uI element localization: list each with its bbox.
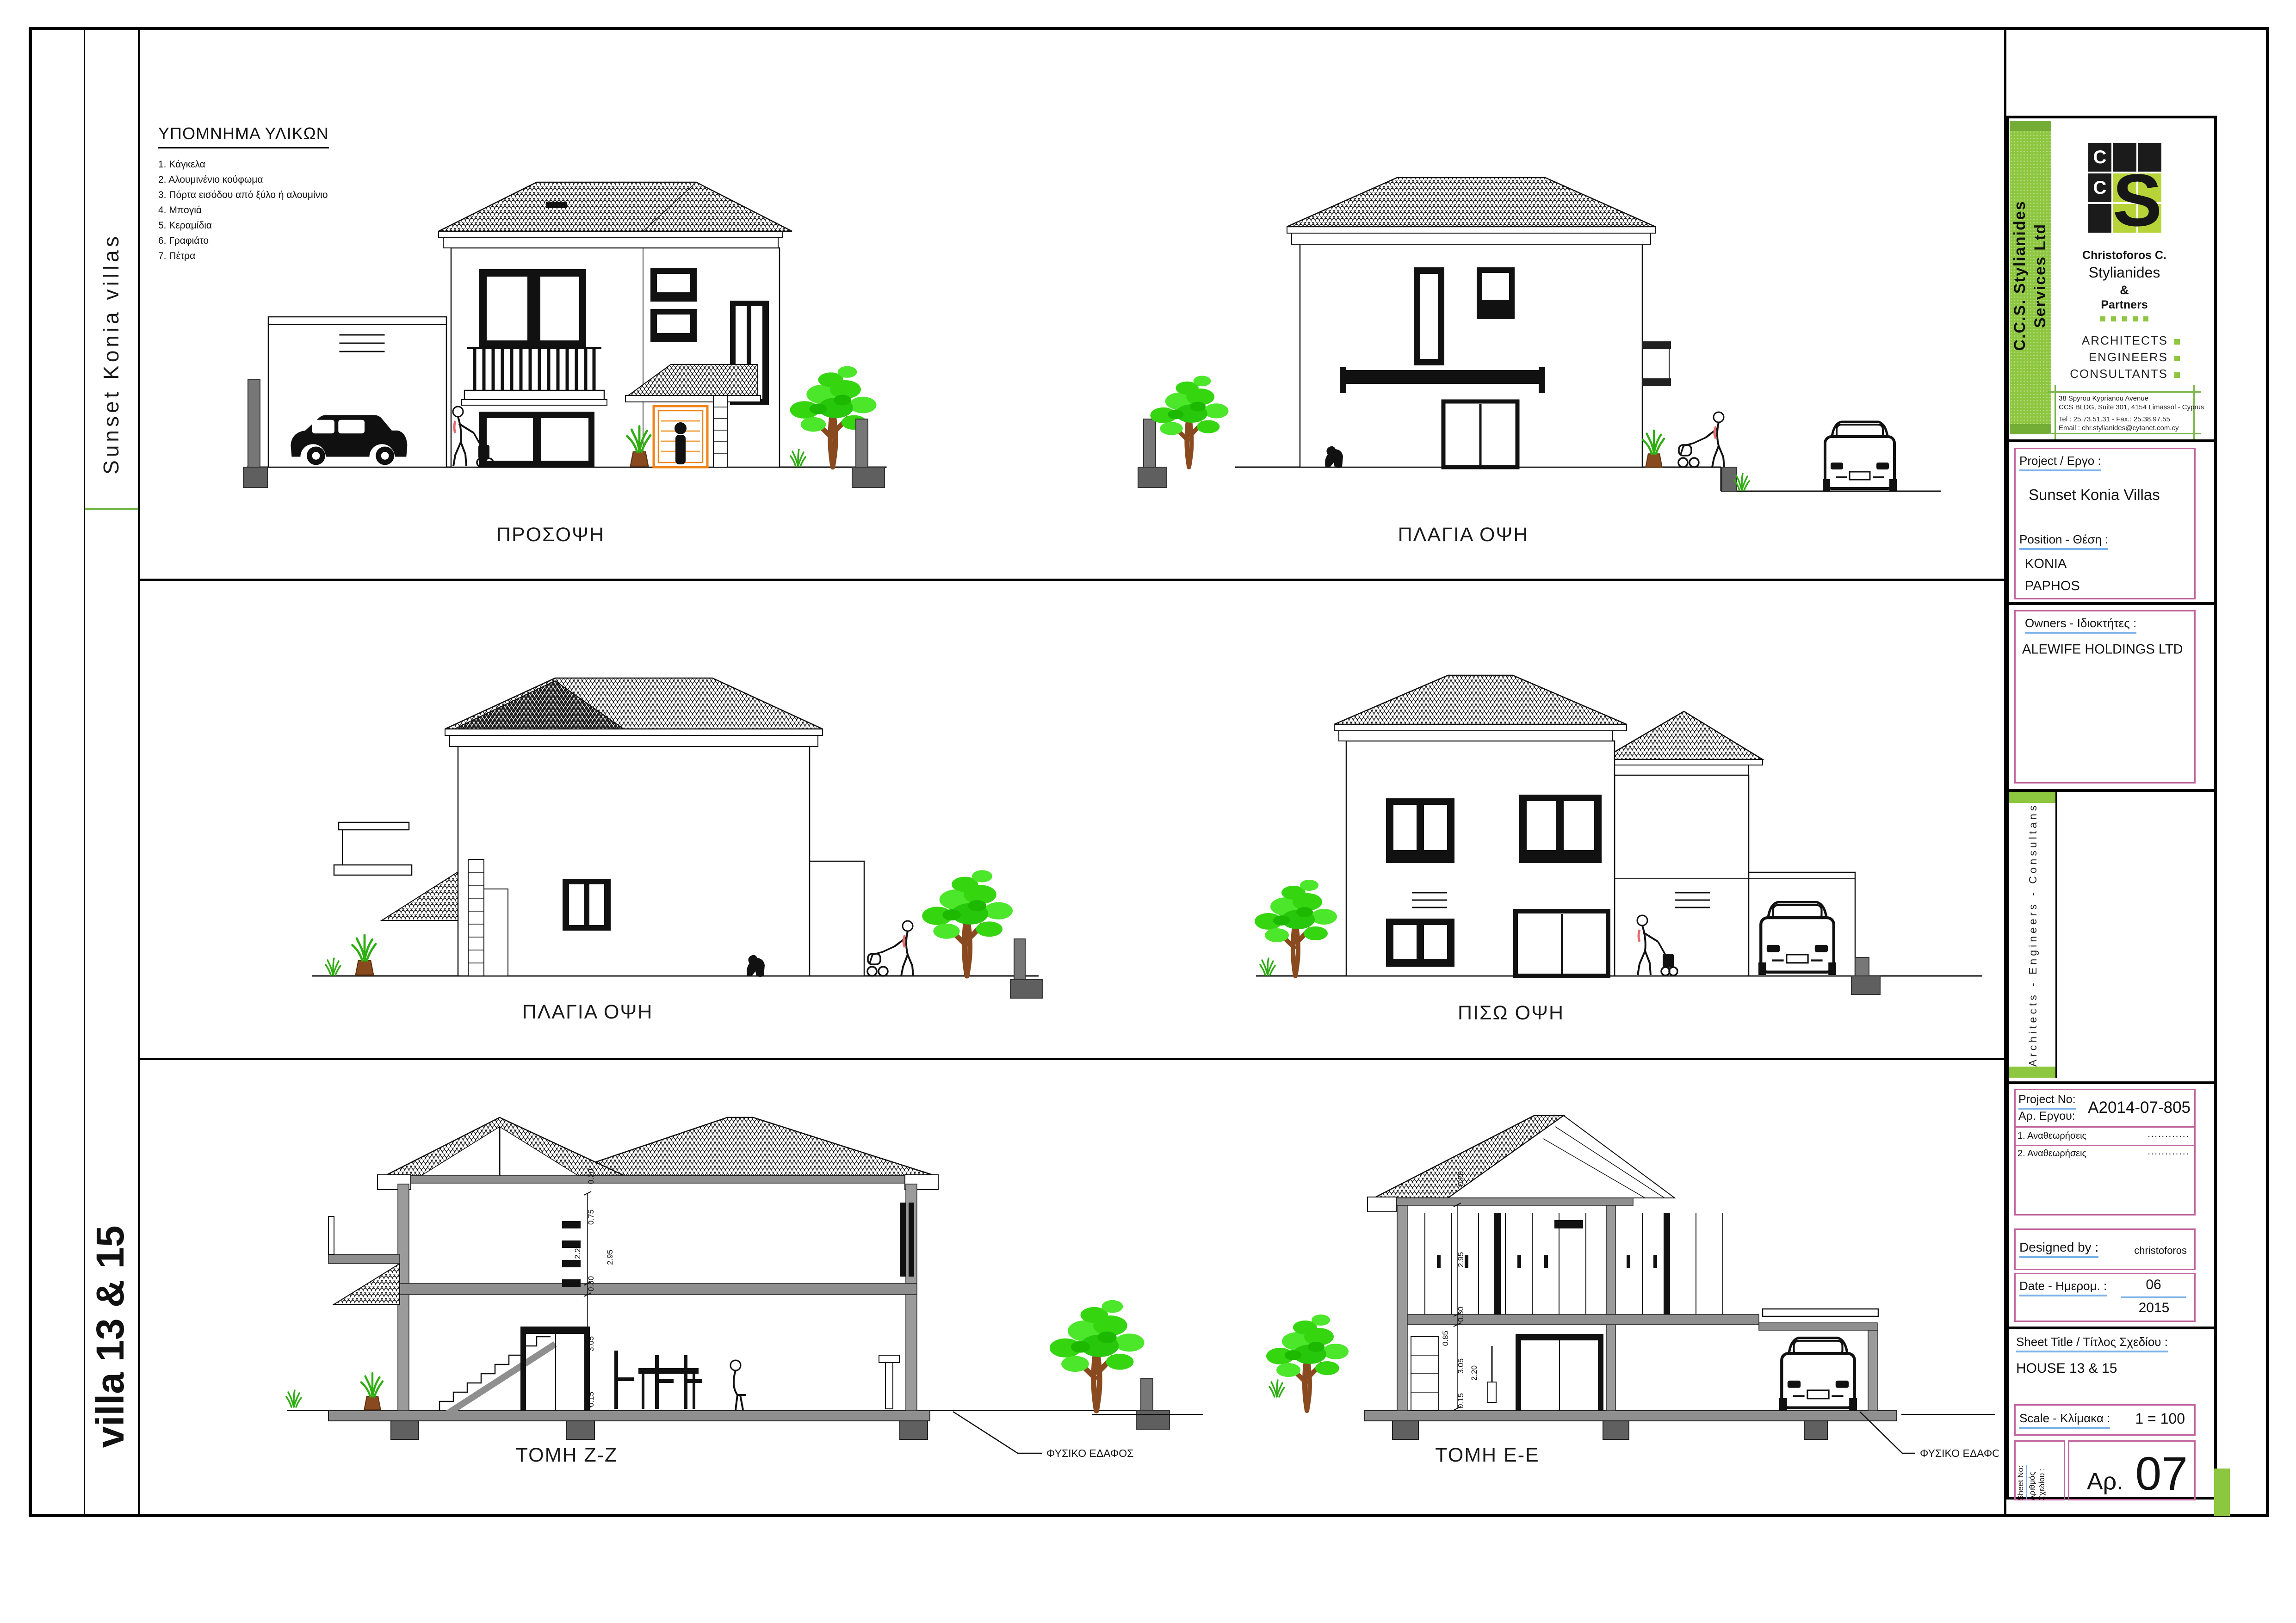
- tree-icon: [1050, 1300, 1145, 1411]
- sheet-title-value: HOUSE 13 & 15: [2016, 1361, 2117, 1376]
- person-stroller-icon: [867, 921, 913, 976]
- project-box: Project / Εργο : Sunset Konia Villas Pos…: [2014, 448, 2196, 599]
- tree-icon: [1150, 376, 1228, 467]
- car-rear-icon: [1823, 422, 1897, 491]
- designed-by-value: christoforos: [2134, 1245, 2187, 1257]
- section-ee-drawing: 0.20 2.95 0.30 0.85 3.05 2.20 0.15 ΦΥΣΙΚ…: [1258, 1105, 1999, 1471]
- pink-divider: [2016, 1145, 2194, 1146]
- section-ee-structure: [1365, 1116, 1995, 1439]
- sheet-no-labels: Sheet No: Αριθμός Σχεδίου :: [2016, 1440, 2064, 1500]
- revision-1: 1. Αναθεωρήσεις: [2018, 1131, 2086, 1142]
- dim-text: 0.85: [1441, 1331, 1450, 1346]
- plant-pot-icon: [1643, 431, 1664, 467]
- logo-s-text: S: [2113, 159, 2162, 241]
- firm-name-line1: Christoforos C.: [2060, 249, 2189, 262]
- grass-icon: [791, 450, 805, 466]
- roles-block: ARCHITECTS ENGINEERS CONSULTANTS: [2064, 332, 2180, 382]
- drawing-sheet: Sunset Konia villas villa 13 & 15 ΥΠΟΜΝΗ…: [0, 0, 2296, 1623]
- side-strip-text: Architects - Engineers - Consultans: [2027, 803, 2039, 1067]
- car-rear-icon: [1758, 902, 1836, 975]
- role-engineers: ENGINEERS: [2089, 350, 2168, 364]
- grass-icon: [1260, 958, 1275, 975]
- sheet-no-label-box: Sheet No: Αριθμός Σχεδίου :: [2014, 1440, 2065, 1500]
- address-3: Tel : 25.73.51.31 - Fax.: 25.38.97.55: [2059, 415, 2204, 424]
- section-zz-structure: [287, 1117, 1203, 1439]
- project-no-box: Project No: Αρ. Εργου: A2014-07-805 1. Α…: [2014, 1089, 2196, 1216]
- scale-box: Scale - Κλίμακα : 1 = 100: [2014, 1404, 2196, 1436]
- project-no-value: A2014-07-805: [2088, 1098, 2191, 1117]
- firm-amp: &: [2060, 283, 2189, 297]
- dim-text: 0.15: [1456, 1393, 1465, 1408]
- address-1: 38 Spyrou Kyprianou Avenue: [2059, 394, 2204, 403]
- project-label: Project / Εργο :: [2019, 454, 2101, 471]
- company-banner-cap-bottom: [2010, 424, 2051, 434]
- section-ee-label: ΤΟΜΗ E-E: [1395, 1444, 1580, 1467]
- sheet-no-label-1: Sheet No:: [2016, 1465, 2027, 1500]
- dim-text: 2.20: [573, 1244, 582, 1259]
- company-banner-line1: C.C.S. Stylianides: [2010, 132, 2030, 419]
- rear-elevation-drawing: [1249, 661, 1989, 1004]
- revision-1-dots: ............: [2147, 1129, 2190, 1140]
- green-square-icon: [2174, 356, 2180, 361]
- date-underline: [2121, 1296, 2186, 1298]
- green-square-icon: [2174, 339, 2180, 345]
- car-front-icon: [1779, 1338, 1857, 1411]
- sheet-title-area: Sheet Title / Τίτλος Σχεδίου : HOUSE 13 …: [2014, 1334, 2196, 1399]
- dim-text: 0.20: [1456, 1171, 1465, 1186]
- side-elevation-top-drawing: [1120, 162, 1952, 495]
- project-no-label-en: Project No:: [2018, 1093, 2076, 1110]
- logo-letter-s: S: [2110, 163, 2165, 237]
- scale-value: 1 = 100: [2135, 1410, 2185, 1427]
- row-divider-2: [139, 1058, 2004, 1060]
- ground-note-leader: ΦΥΣΙΚΟ ΕΔΑΦΟΣ: [953, 1412, 1133, 1459]
- side-house-2: [312, 678, 1043, 998]
- rear-elevation-label: ΠΙΣΩ ΟΨΗ: [1418, 1002, 1603, 1024]
- logo-cell: [2088, 204, 2111, 233]
- firm-name-line2: Stylianides: [2060, 264, 2189, 281]
- designed-by-label: Designed by :: [2019, 1240, 2098, 1258]
- dim-text: 2.95: [606, 1250, 614, 1265]
- address-2: CCS BLDG, Suite 301, 4154 Limassol - Cyp…: [2059, 403, 2204, 412]
- front-elevation-label: ΠΡΟΣΟΨΗ: [458, 524, 643, 546]
- side-strip-text-wrap: Architects - Engineers - Consultans: [2014, 796, 2051, 1074]
- firm-dots: [2060, 315, 2189, 324]
- owners-box: Owners - Ιδιοκτήτες : ALEWIFE HOLDINGS L…: [2014, 610, 2196, 784]
- side-strip: Architects - Engineers - Consultans: [2009, 792, 2057, 1078]
- firm-name-line3: Partners: [2060, 298, 2189, 312]
- row-divider-1: [139, 579, 2004, 581]
- grass-icon: [326, 958, 340, 975]
- sheet-no-value-box: Αρ. 07: [2068, 1440, 2196, 1500]
- role-consultants: CONSULTANTS: [2070, 367, 2168, 381]
- sheet-villa-title-text: villa 13 & 15: [88, 1226, 132, 1448]
- tb-divider-5: [2009, 1327, 2214, 1329]
- title-block: C.C.S. Stylianides Services Ltd C C S Ch…: [2006, 116, 2217, 1500]
- grass-icon: [286, 1390, 301, 1407]
- revision-2: 2. Αναθεωρήσεις: [2018, 1148, 2086, 1159]
- grass-icon: [1269, 1380, 1284, 1397]
- logo-cell-c2: C: [2088, 173, 2111, 202]
- project-no-label-gr: Αρ. Εργου:: [2018, 1110, 2075, 1123]
- owners-value: ALEWIFE HOLDINGS LTD: [2022, 642, 2183, 657]
- dim-text: 2.95: [1456, 1252, 1465, 1267]
- dim-text: 3.05: [587, 1336, 595, 1351]
- tree-icon: [1255, 880, 1337, 976]
- section-zz-drawing: 0.20 0.75 2.20 2.95 0.30 3.05 0.15 ΦΥΣΙΚ…: [259, 1105, 1207, 1471]
- date-year: 2015: [2124, 1300, 2184, 1316]
- front-entrance-door: [654, 406, 707, 467]
- address-line-bottom: [2048, 433, 2201, 434]
- address-line-left: [2055, 385, 2056, 439]
- position-label: Position - Θέση :: [2019, 532, 2108, 550]
- side-house: [1138, 178, 1941, 491]
- sheet-no-label-2: Αριθμός: [2027, 1440, 2037, 1500]
- dim-text: 2.20: [1470, 1365, 1479, 1381]
- person-stroller-icon: [1678, 412, 1724, 467]
- dim-text: 0.20: [587, 1169, 595, 1184]
- position-value-1: KONIA: [2025, 556, 2067, 572]
- sheet-no-prefix: Αρ.: [2087, 1468, 2123, 1495]
- sheet-no-label-3: Σχεδίου :: [2037, 1440, 2047, 1500]
- position-value-2: PAPHOS: [2025, 579, 2080, 594]
- company-banner-cap-top: [2010, 121, 2051, 131]
- ground-note-text: ΦΥΣΙΚΟ ΕΔΑΦΟΣ: [1920, 1447, 1999, 1459]
- sheet-no-value: 07: [2135, 1447, 2188, 1501]
- section-ee-dimensions: 0.20 2.95 0.30 0.85 3.05 2.20 0.15: [1441, 1171, 1479, 1410]
- address-4: Email : chr.stylianides@cytanet.com.cy: [2059, 424, 2204, 432]
- firm-name-block: Christoforos C. Stylianides & Partners: [2060, 249, 2189, 324]
- logo-letter-c2: C: [2093, 178, 2107, 198]
- scale-label: Scale - Κλίμακα :: [2019, 1411, 2110, 1429]
- pink-divider: [2016, 1126, 2194, 1128]
- dim-text: 0.30: [1456, 1307, 1465, 1322]
- rear-house: [1256, 675, 1982, 994]
- project-value: Sunset Konia Villas: [2029, 486, 2160, 504]
- date-label: Date - Ημερομ. :: [2019, 1279, 2107, 1296]
- role-architects: ARCHITECTS: [2082, 333, 2168, 347]
- sheet-side-title-text: Sunset Konia villas: [99, 233, 123, 475]
- sheet-side-title: Sunset Konia villas: [83, 192, 139, 516]
- date-box: Date - Ημερομ. : 06 2015: [2014, 1273, 2196, 1322]
- ground-note-text: ΦΥΣΙΚΟ ΕΔΑΦΟΣ: [1046, 1447, 1133, 1459]
- side-elevation-top-label: ΠΛΑΓΙΑ ΟΨΗ: [1371, 524, 1556, 546]
- sheet-villa-title: villa 13 & 15: [80, 1193, 140, 1480]
- plant-pot-icon: [361, 1373, 383, 1410]
- tb-divider-1: [2009, 439, 2214, 442]
- side-elevation-mid-drawing: [305, 661, 1046, 1004]
- address-text: 38 Spyrou Kyprianou Avenue CCS BLDG, Sui…: [2059, 394, 2204, 432]
- front-elevation-drawing: [241, 162, 888, 495]
- green-corner-tab: [2214, 1469, 2230, 1516]
- address-line-top: [2048, 391, 2201, 393]
- designed-by-box: Designed by : christoforos: [2014, 1228, 2196, 1270]
- owners-label: Owners - Ιδιοκτήτες :: [2025, 616, 2136, 634]
- dim-text: 3.05: [1456, 1358, 1465, 1374]
- green-square-icon: [2174, 372, 2180, 378]
- sheet-title-label: Sheet Title / Τίτλος Σχεδίου :: [2016, 1335, 2168, 1352]
- company-banner-line2: Services Ltd: [2030, 132, 2050, 419]
- dim-text: 0.15: [587, 1392, 595, 1407]
- dim-text: 0.30: [587, 1276, 595, 1291]
- tb-divider-4: [2009, 1081, 2214, 1084]
- company-banner-text: C.C.S. Stylianides Services Ltd: [2010, 132, 2051, 419]
- tree-icon: [922, 870, 1013, 976]
- tb-divider-2: [2009, 602, 2214, 605]
- plant-pot-icon: [353, 935, 376, 975]
- dim-text: 0.75: [587, 1210, 595, 1225]
- logo-letter-c1: C: [2093, 147, 2107, 167]
- ccs-logo-icon: C C S: [2088, 143, 2162, 235]
- revision-2-dots: ............: [2147, 1147, 2190, 1157]
- section-zz-label: ΤΟΜΗ Z-Z: [474, 1444, 659, 1467]
- date-month: 06: [2126, 1277, 2181, 1293]
- side-elevation-mid-label: ΠΛΑΓΙΑ ΟΨΗ: [495, 1001, 680, 1024]
- legend-title: ΥΠΟΜΝΗΜΑ ΥΛΙΚΩΝ: [158, 124, 329, 148]
- logo-cell-c1: C: [2088, 143, 2111, 172]
